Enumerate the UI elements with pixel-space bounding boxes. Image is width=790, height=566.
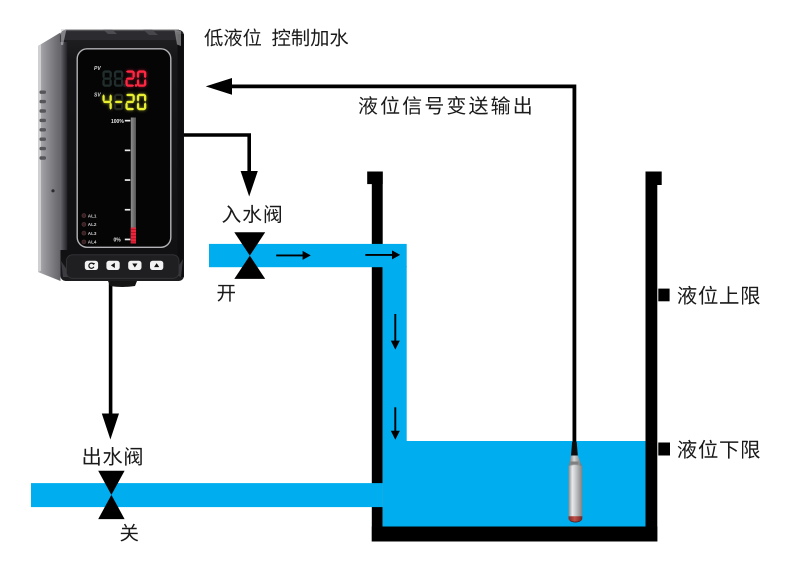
svg-text:0%: 0%: [114, 238, 122, 244]
svg-text:AL4: AL4: [88, 240, 97, 245]
svg-text:SV: SV: [94, 93, 101, 99]
svg-text:AL3: AL3: [88, 231, 97, 236]
svg-text:100%: 100%: [111, 119, 124, 125]
svg-text:AL1: AL1: [88, 213, 97, 218]
svg-text:PV: PV: [94, 66, 101, 72]
svg-text:AL2: AL2: [88, 222, 97, 227]
